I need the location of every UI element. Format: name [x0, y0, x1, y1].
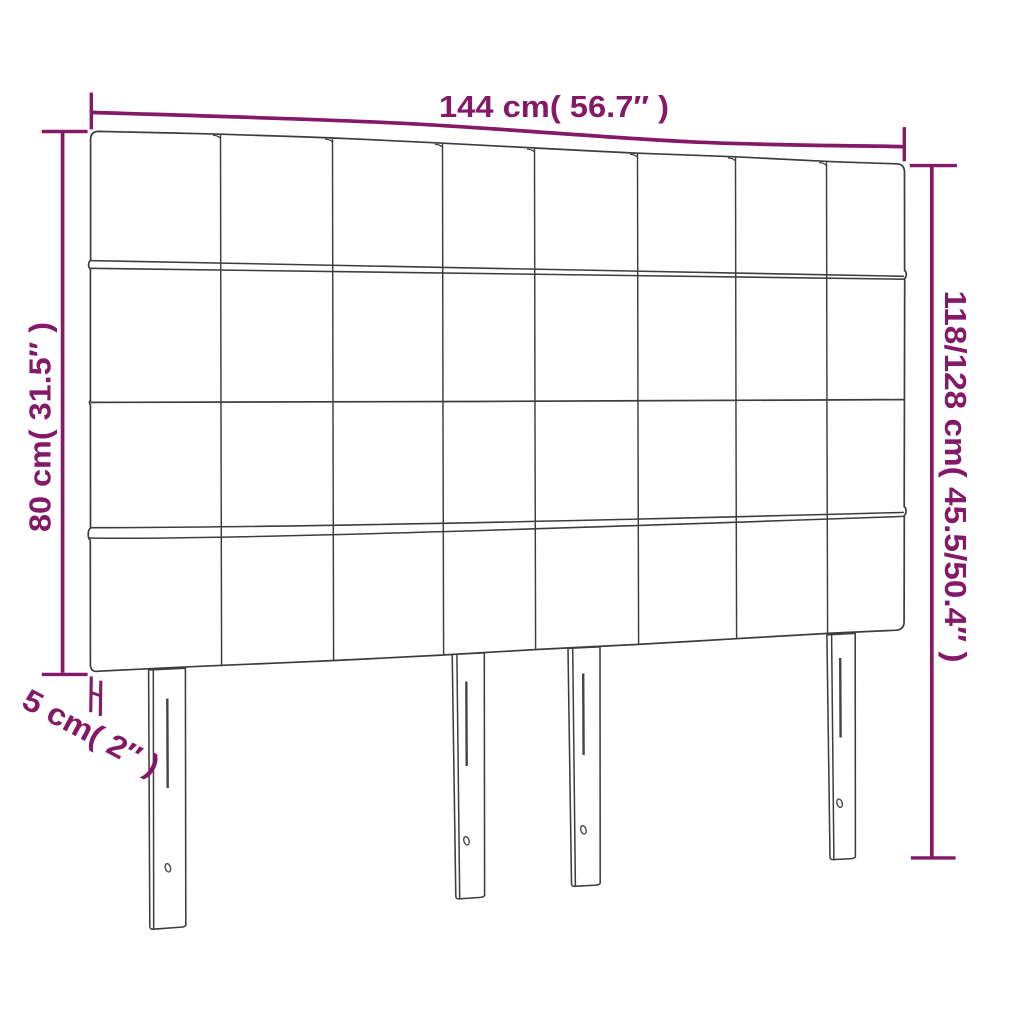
svg-text:80 cm( 31.5″ ): 80 cm( 31.5″ ) — [24, 322, 58, 532]
svg-text:144 cm( 56.7″ ): 144 cm( 56.7″ ) — [439, 90, 669, 124]
svg-text:118/128 cm( 45.5/50.4″ ): 118/128 cm( 45.5/50.4″ ) — [938, 291, 972, 663]
